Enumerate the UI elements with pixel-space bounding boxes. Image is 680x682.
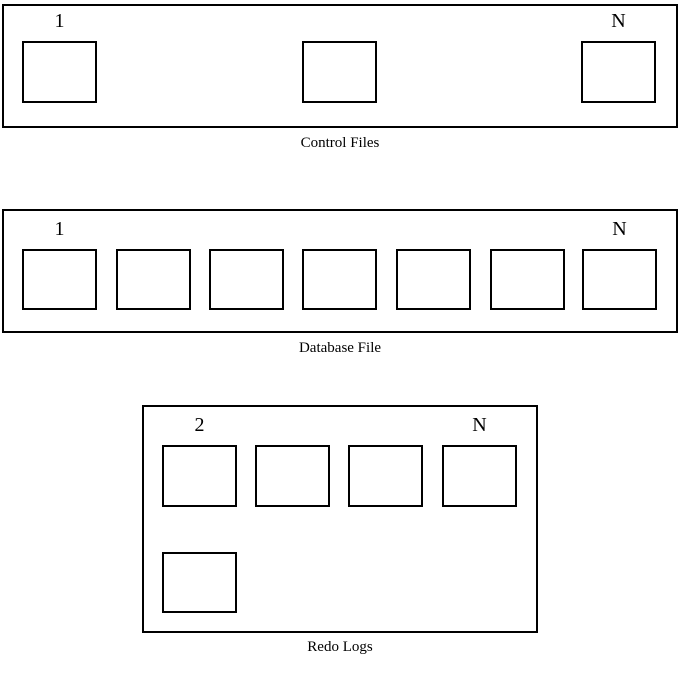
redo-log-box-4: [348, 445, 423, 507]
database-file-box-5: [396, 249, 471, 310]
redo-logs-first-label: 2: [162, 415, 237, 436]
database-file-container: 1 N: [2, 209, 678, 333]
database-file-box-2: [116, 249, 191, 310]
redo-log-box-2: [162, 445, 237, 507]
control-files-caption: Control Files: [0, 135, 680, 151]
redo-logs-last-label: N: [442, 415, 517, 436]
database-file-box-n: [582, 249, 657, 310]
database-file-box-1: [22, 249, 97, 310]
control-files-first-label: 1: [22, 11, 97, 32]
control-files-last-label: N: [581, 11, 656, 32]
redo-log-box-bottom: [162, 552, 237, 613]
control-file-box-n: [581, 41, 656, 103]
database-file-first-label: 1: [22, 219, 97, 240]
database-file-box-4: [302, 249, 377, 310]
database-file-caption: Database File: [0, 340, 680, 356]
database-file-last-label: N: [582, 219, 657, 240]
redo-log-box-3: [255, 445, 330, 507]
redo-log-box-n: [442, 445, 517, 507]
redo-logs-container: 2 N: [142, 405, 538, 633]
database-file-box-6: [490, 249, 565, 310]
control-files-container: 1 N: [2, 4, 678, 128]
control-file-box-2: [302, 41, 377, 103]
database-files-diagram: 1 N Control Files 1 N Database File 2 N …: [0, 0, 680, 682]
control-file-box-1: [22, 41, 97, 103]
database-file-box-3: [209, 249, 284, 310]
redo-logs-caption: Redo Logs: [0, 639, 680, 655]
